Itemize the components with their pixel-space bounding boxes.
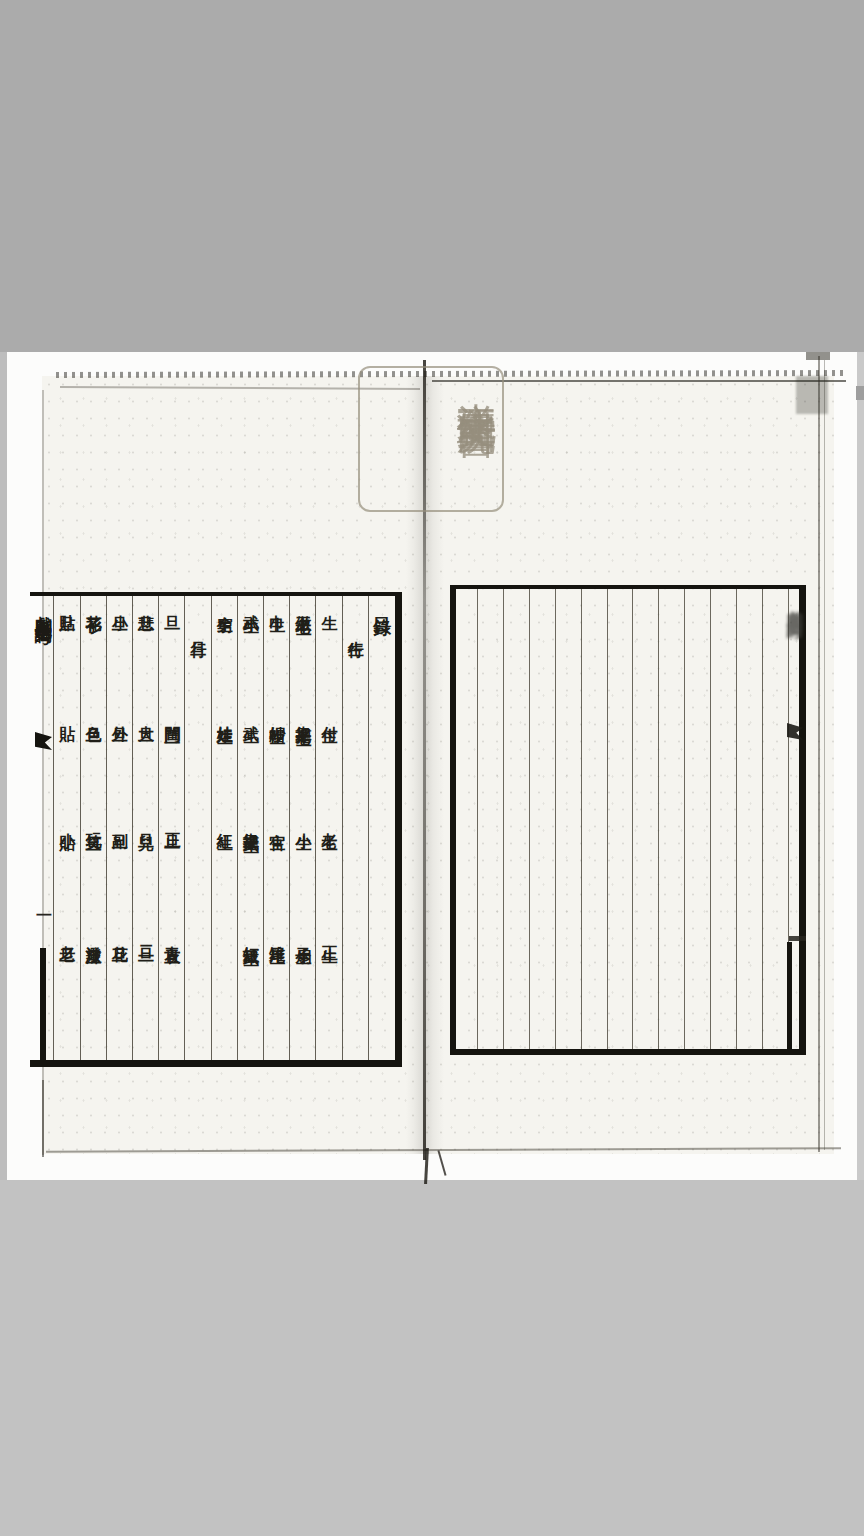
toc-entry: 紅生 bbox=[212, 820, 238, 823]
right-page-frame bbox=[450, 585, 806, 1055]
top-right-edge-mark bbox=[806, 352, 830, 360]
ruled-line bbox=[607, 589, 608, 1049]
right-page-side-edge bbox=[818, 356, 820, 1152]
toc-entry: 花旦 bbox=[107, 933, 133, 936]
toc-entry: 二旦 bbox=[133, 933, 159, 936]
toc-column: 旦行 bbox=[184, 596, 211, 1060]
toc-entry: 老旦 bbox=[54, 933, 80, 936]
toc-entry: 旦兒 bbox=[133, 820, 159, 823]
gray-mat-top bbox=[0, 0, 864, 352]
toc-entry: 做工老生 bbox=[290, 602, 316, 608]
toc-column: 貼旦貼小貼老旦 bbox=[53, 596, 80, 1060]
toc-entry: 悲旦 bbox=[133, 602, 159, 605]
toc-entry: 色旦 bbox=[81, 713, 107, 716]
toc-entry: 雉尾生 bbox=[264, 933, 290, 938]
toc-entry: 正旦 bbox=[159, 820, 185, 823]
toc-entry: 窮生 bbox=[212, 602, 238, 605]
toc-column: 小旦外旦副旦花旦 bbox=[106, 596, 133, 1060]
toc-entry: 貼旦 bbox=[54, 602, 80, 605]
ruled-line bbox=[503, 589, 504, 1049]
toc-entry: 正生 bbox=[316, 933, 342, 936]
ruled-line bbox=[632, 589, 633, 1049]
top-right-corner-shadow bbox=[796, 376, 828, 414]
ruled-line bbox=[581, 589, 582, 1049]
gray-mat-bottom bbox=[0, 1180, 864, 1536]
toc-entry: 靠把老生 bbox=[290, 713, 316, 719]
toc-entry: 貼 bbox=[54, 713, 80, 715]
toc-entry: 付生 bbox=[316, 713, 342, 716]
toc-entry: 玩笑旦 bbox=[81, 820, 107, 825]
right-margin-thick-bar bbox=[787, 942, 792, 1052]
book-title: 戲劇脚色名詞考 bbox=[33, 602, 55, 616]
toc-entry: 武小生 bbox=[238, 602, 264, 607]
gray-mat-left bbox=[0, 352, 7, 1180]
toc-entry: 小旦 bbox=[107, 602, 133, 605]
mat-smudge bbox=[856, 386, 864, 400]
ruled-line bbox=[555, 589, 556, 1049]
toc-entry: 花衫子 bbox=[81, 602, 107, 607]
ruled-line bbox=[710, 589, 711, 1049]
toc-column: 窮生娃娃生紅生 bbox=[211, 596, 238, 1060]
toc-entry: 紗帽生 bbox=[264, 713, 290, 718]
ruled-line bbox=[762, 589, 763, 1049]
toc-column: 旦閨門旦正旦青衣旦 bbox=[158, 596, 185, 1060]
toc-entry: 小貼 bbox=[54, 820, 80, 823]
toc-entry: 娃娃生 bbox=[212, 713, 238, 718]
toc-grid: 目錄生行生付生老生正生做工老生靠把老生小生扇子生巾生紗帽生官生雉尾生武小生武生靠… bbox=[30, 596, 395, 1060]
toc-column: 目錄 bbox=[368, 596, 395, 1060]
ghost-page-number bbox=[789, 936, 806, 941]
toc-entry: 大旦 bbox=[133, 713, 159, 716]
toc-section-header: 生行 bbox=[343, 628, 369, 631]
toc-entry: 副旦 bbox=[107, 820, 133, 823]
toc-column: 武小生武生靠把武生短打武生 bbox=[237, 596, 264, 1060]
toc-column: 花衫子色旦玩笑旦潑辣旦 bbox=[80, 596, 107, 1060]
toc-entry: 外旦 bbox=[107, 713, 133, 716]
toc-entry: 潑辣旦 bbox=[81, 933, 107, 938]
toc-entry: 生 bbox=[316, 602, 342, 604]
right-page-grid bbox=[456, 589, 799, 1049]
toc-column: 做工老生靠把老生小生扇子生 bbox=[289, 596, 316, 1060]
ghost-book-title: 戲劇脚色名詞考 bbox=[785, 598, 805, 612]
ruled-line bbox=[529, 589, 530, 1049]
ruled-line bbox=[736, 589, 737, 1049]
toc-column: 生行 bbox=[342, 596, 369, 1060]
library-seal-stamp: 東洋文化研究所圖書 bbox=[358, 366, 504, 512]
right-page-side-edge-2 bbox=[824, 360, 825, 1150]
toc-entry: 小生 bbox=[290, 820, 316, 823]
toc-entry: 老生 bbox=[316, 820, 342, 823]
toc-entry: 巾生 bbox=[264, 602, 290, 605]
toc-entry: 青衣旦 bbox=[159, 933, 185, 938]
toc-frame: 目錄生行生付生老生正生做工老生靠把老生小生扇子生巾生紗帽生官生雉尾生武小生武生靠… bbox=[30, 592, 402, 1067]
toc-entry: 靠把武生 bbox=[238, 820, 264, 826]
fishtail-icon bbox=[35, 732, 52, 750]
left-margin-thick-bar bbox=[40, 948, 46, 1062]
scanned-book-spread: 東洋文化研究所圖書 戲劇脚色名詞考 目錄生行生付生老生正生做工老生靠把老生小生扇… bbox=[0, 0, 864, 1536]
toc-entry: 官生 bbox=[264, 820, 290, 823]
ruled-line bbox=[684, 589, 685, 1049]
toc-entry: 扇子生 bbox=[290, 933, 316, 938]
ruled-line bbox=[658, 589, 659, 1049]
toc-entry: 閨門旦 bbox=[159, 713, 185, 718]
toc-title: 目錄 bbox=[369, 602, 395, 606]
gray-mat-right bbox=[857, 352, 864, 1180]
ruled-line bbox=[477, 589, 478, 1049]
toc-entry: 旦 bbox=[159, 602, 185, 604]
left-page-side-edge-dark bbox=[42, 1080, 44, 1157]
toc-section-header: 旦行 bbox=[185, 628, 211, 631]
toc-column: 巾生紗帽生官生雉尾生 bbox=[263, 596, 290, 1060]
toc-column: 悲旦大旦旦兒二旦 bbox=[132, 596, 159, 1060]
toc-column: 生付生老生正生 bbox=[315, 596, 342, 1060]
toc-entry: 武生 bbox=[238, 713, 264, 716]
toc-entry: 短打武生 bbox=[238, 933, 264, 939]
